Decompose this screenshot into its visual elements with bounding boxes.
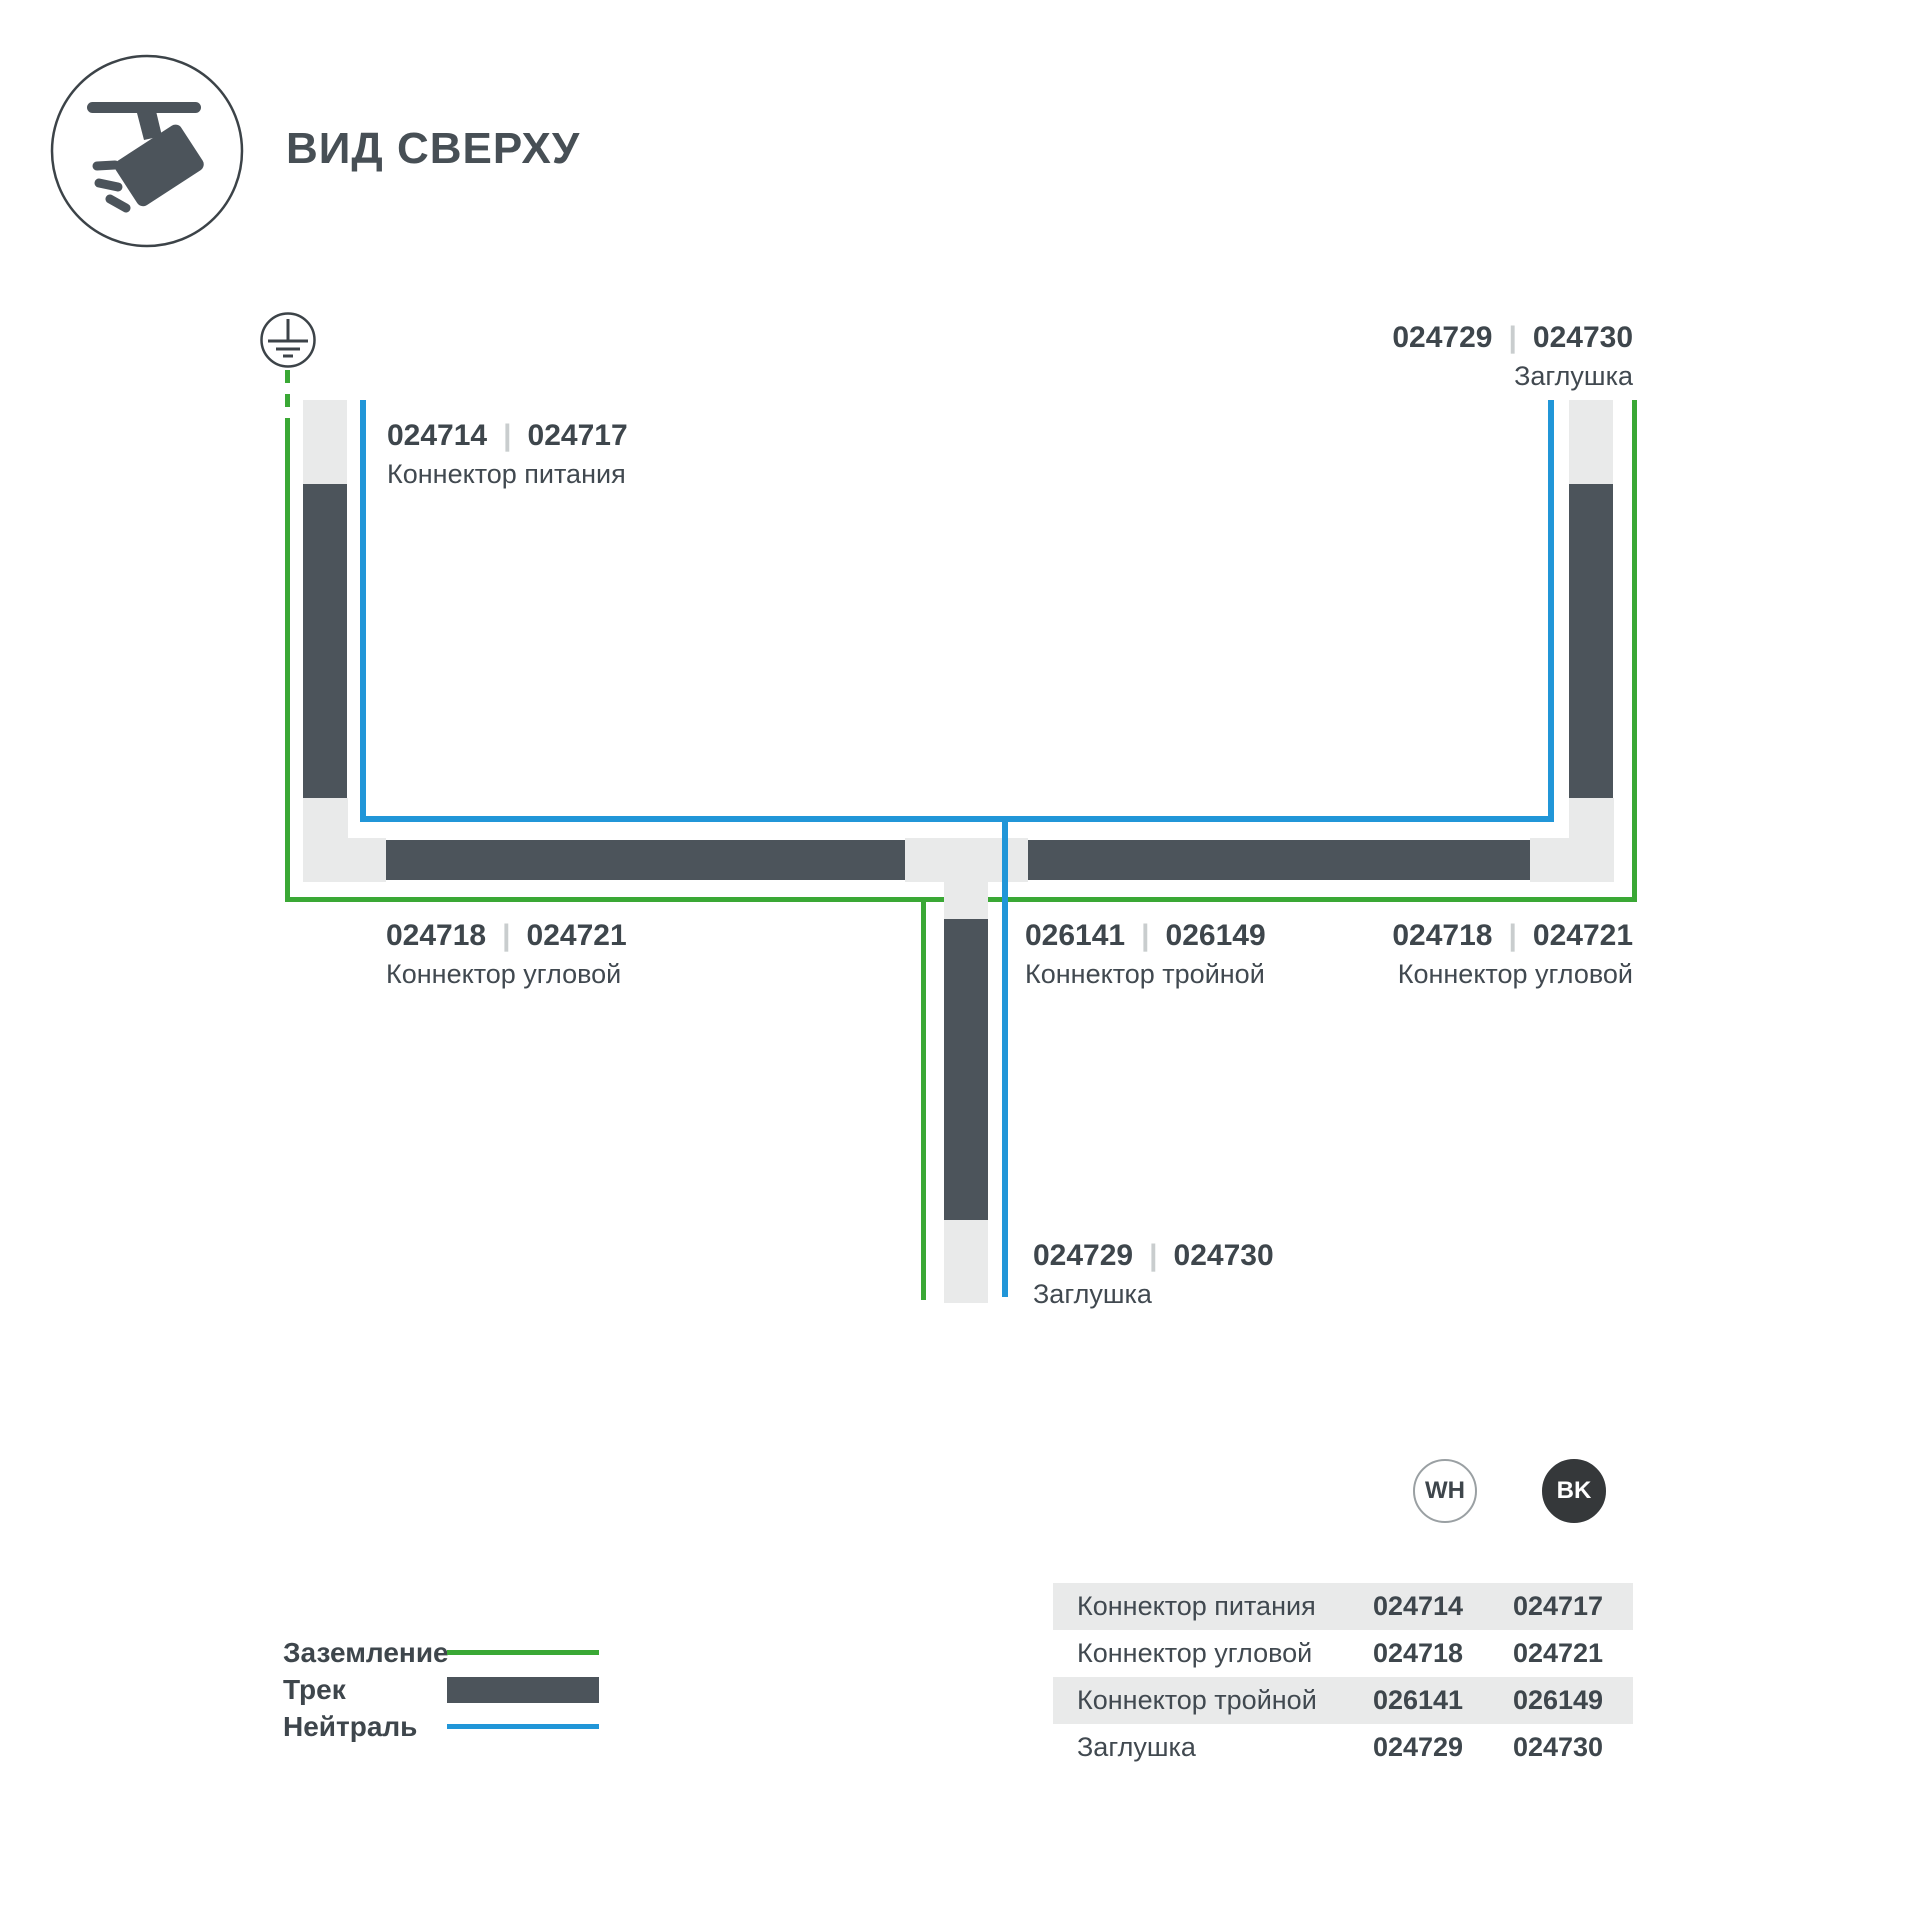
code-bk: 024730: [1533, 321, 1633, 354]
code-bk: 024730: [1174, 1239, 1274, 1272]
corner-connector-left-arm: [303, 838, 386, 882]
code-separator: |: [487, 419, 527, 452]
label-tee-connector: 026141|026149 Коннектор тройной: [1025, 920, 1266, 989]
table-cell-bk: 024730: [1483, 1732, 1633, 1763]
code-separator: |: [1133, 1239, 1173, 1272]
track-bar-swatch: [447, 1677, 599, 1703]
ground-symbol-icon: [259, 311, 317, 369]
table-cell-bk: 026149: [1483, 1685, 1633, 1716]
table-row: Коннектор угловой 024718 024721: [1053, 1630, 1633, 1677]
code-separator: |: [1492, 919, 1532, 952]
ground-wire-bottom-right: [988, 897, 1637, 902]
label-end-cap-bottom: 024729|024730 Заглушка: [1033, 1240, 1274, 1309]
tee-connector: [905, 838, 1028, 882]
track-bottom-left: [386, 840, 905, 880]
table-cell-bk: 024721: [1483, 1638, 1633, 1669]
code-wh: 026141: [1025, 919, 1125, 952]
label-end-cap-top-right: 024729|024730 Заглушка: [1392, 322, 1633, 391]
legend-label: Заземление: [283, 1637, 447, 1669]
article-table: Коннектор питания 024714 024717 Коннекто…: [1053, 1583, 1633, 1771]
variant-white-badge: WH: [1413, 1459, 1477, 1523]
ground-wire-branch: [921, 902, 926, 1300]
label-corner-connector-left: 024718|024721 Коннектор угловой: [386, 920, 627, 989]
label-caption: Коннектор тройной: [1025, 959, 1266, 989]
label-caption: Коннектор угловой: [386, 959, 627, 989]
legend-item-neutral: Нейтраль: [283, 1708, 603, 1745]
code-wh: 024729: [1033, 1239, 1133, 1272]
code-separator: |: [1125, 919, 1165, 952]
ground-wire-left-vertical: [285, 420, 290, 902]
legend-label: Нейтраль: [283, 1711, 447, 1743]
neutral-line-swatch: [447, 1724, 599, 1729]
table-cell-wh: 024718: [1353, 1638, 1483, 1669]
table-cell-name: Коннектор угловой: [1077, 1638, 1353, 1669]
neutral-wire-left-vertical: [360, 400, 366, 822]
legend: Заземление Трек Нейтраль: [283, 1634, 603, 1745]
table-cell-name: Коннектор тройной: [1077, 1685, 1353, 1716]
page-title: ВИД СВЕРХУ: [286, 124, 580, 174]
track-left-vertical: [303, 484, 347, 798]
table-cell-name: Коннектор питания: [1077, 1591, 1353, 1622]
ground-wire-bottom-left: [285, 897, 944, 902]
label-caption: Коннектор угловой: [1392, 959, 1633, 989]
table-cell-wh: 024714: [1353, 1591, 1483, 1622]
code-bk: 026149: [1166, 919, 1266, 952]
page: ВИД СВЕРХУ 024714|024717 Коннект: [0, 0, 1920, 1920]
label-power-connector: 024714|024717 Коннектор питания: [387, 420, 628, 489]
track-right-vertical: [1569, 484, 1613, 798]
end-cap-bottom: [944, 1220, 988, 1303]
label-caption: Заглушка: [1033, 1279, 1274, 1309]
label-caption: Заглушка: [1392, 361, 1633, 391]
corner-connector-right-arm: [1530, 838, 1614, 882]
ground-line-swatch: [447, 1650, 599, 1655]
table-cell-bk: 024717: [1483, 1591, 1633, 1622]
table-cell-wh: 024729: [1353, 1732, 1483, 1763]
ground-wire-right-vertical: [1632, 400, 1637, 902]
end-cap-left: [303, 400, 347, 484]
neutral-wire-branch: [1002, 822, 1008, 1297]
code-separator: |: [1492, 321, 1532, 354]
legend-label: Трек: [283, 1674, 447, 1706]
track-light-icon: [49, 53, 245, 249]
tee-connector-leg: [944, 882, 988, 920]
table-cell-wh: 026141: [1353, 1685, 1483, 1716]
neutral-wire-right-vertical: [1548, 400, 1554, 822]
table-row: Коннектор тройной 026141 026149: [1053, 1677, 1633, 1724]
code-wh: 024718: [1392, 919, 1492, 952]
legend-item-ground: Заземление: [283, 1634, 603, 1671]
track-bottom-right: [1028, 840, 1530, 880]
code-wh: 024729: [1392, 321, 1492, 354]
label-corner-connector-right: 024718|024721 Коннектор угловой: [1392, 920, 1633, 989]
code-wh: 024714: [387, 419, 487, 452]
variant-black-badge: BK: [1542, 1459, 1606, 1523]
ground-wire-dashed: [285, 370, 290, 420]
label-caption: Коннектор питания: [387, 459, 628, 489]
table-row: Заглушка 024729 024730: [1053, 1724, 1633, 1771]
neutral-wire-horizontal: [360, 816, 1554, 822]
legend-item-track: Трек: [283, 1671, 603, 1708]
table-cell-name: Заглушка: [1077, 1732, 1353, 1763]
code-wh: 024718: [386, 919, 486, 952]
track-middle-vertical: [944, 919, 988, 1220]
code-separator: |: [486, 919, 526, 952]
table-row: Коннектор питания 024714 024717: [1053, 1583, 1633, 1630]
code-bk: 024721: [527, 919, 627, 952]
code-bk: 024717: [528, 419, 628, 452]
code-bk: 024721: [1533, 919, 1633, 952]
end-cap-right: [1569, 400, 1613, 484]
